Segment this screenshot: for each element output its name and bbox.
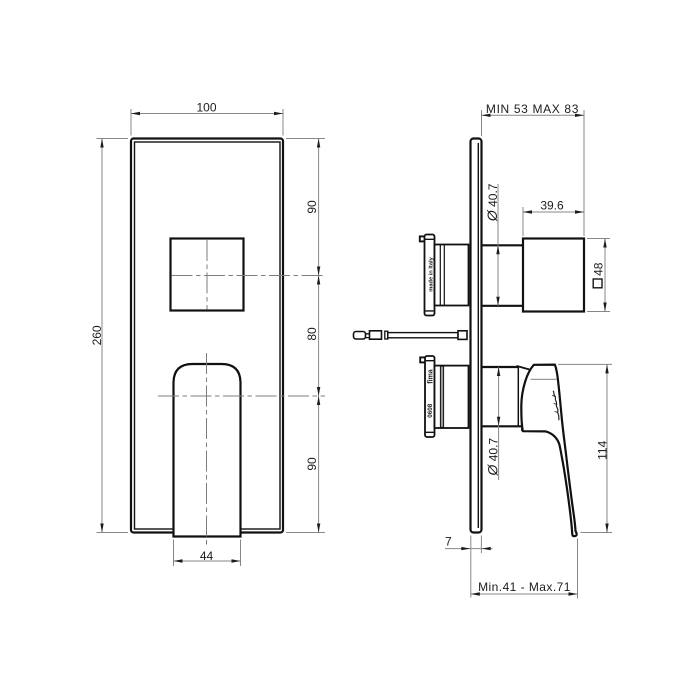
- svg-text:80: 80: [305, 327, 319, 341]
- svg-text:114: 114: [596, 440, 610, 459]
- svg-text:Min.41 - Max.71: Min.41 - Max.71: [478, 580, 571, 594]
- svg-text:0608: 0608: [427, 403, 434, 418]
- svg-text:fima: fima: [428, 369, 435, 384]
- svg-text:100: 100: [196, 101, 216, 115]
- svg-text:39.6: 39.6: [540, 198, 564, 212]
- svg-text:44: 44: [200, 549, 214, 563]
- svg-text:Ø 40.7: Ø 40.7: [484, 183, 500, 222]
- svg-text:90: 90: [305, 457, 319, 471]
- svg-text:48: 48: [591, 262, 605, 276]
- svg-text:260: 260: [90, 325, 104, 345]
- svg-text:90: 90: [305, 200, 319, 214]
- svg-text:7: 7: [445, 535, 452, 549]
- svg-text:MIN 53 MAX 83: MIN 53 MAX 83: [486, 102, 579, 116]
- svg-text:Ø 40.7: Ø 40.7: [484, 438, 500, 477]
